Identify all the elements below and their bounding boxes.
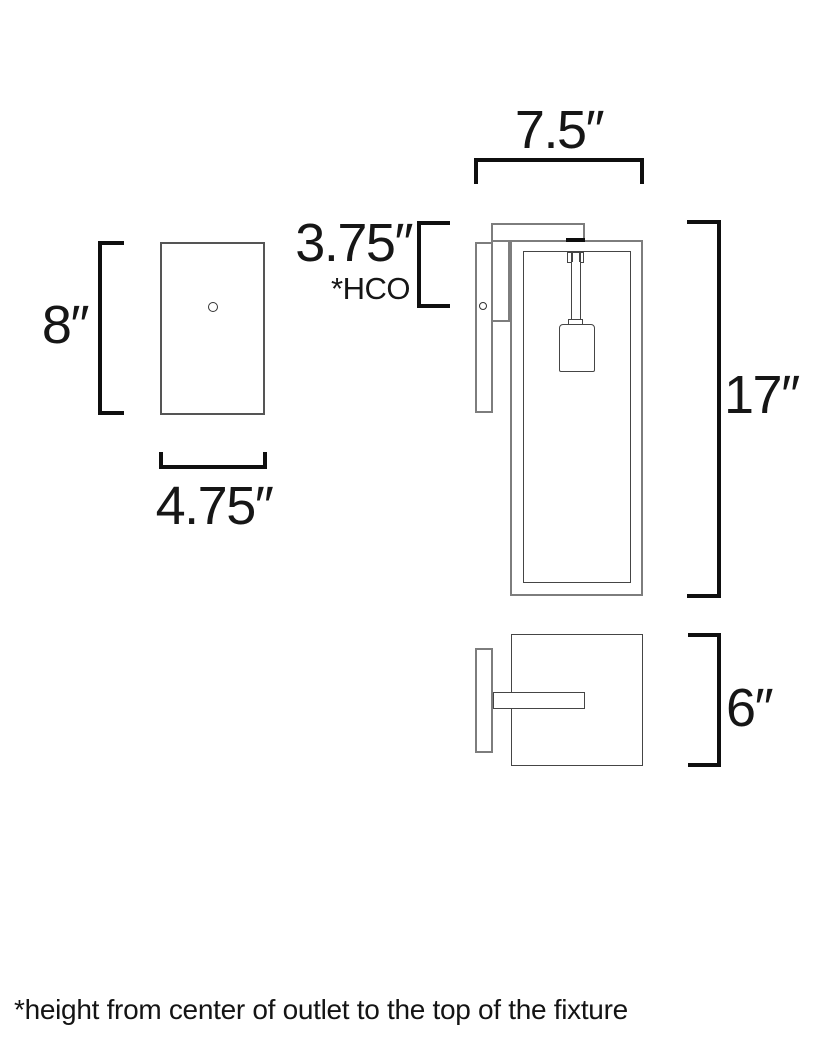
dim-bracket-4-75 — [159, 452, 267, 469]
dim-label-7-5: 7.5″ — [472, 103, 646, 157]
socket-cup — [559, 324, 595, 372]
mount-arm-vertical — [491, 240, 510, 322]
top-view-arm — [493, 692, 585, 709]
dimension-diagram: 8″ 4.75″ 7.5″ 3.75″ *HCO 17″ 6″ *height … — [0, 0, 834, 1042]
dim-label-6: 6″ — [726, 681, 772, 735]
footnote: *height from center of outlet to the top… — [14, 994, 628, 1026]
dim-bracket-7-5 — [474, 158, 644, 184]
dim-label-8: 8″ — [0, 298, 88, 352]
socket-stem — [571, 262, 581, 322]
dim-bracket-hco — [417, 221, 450, 308]
dim-bracket-8 — [98, 241, 124, 415]
dim-label-hco-note: *HCO — [250, 273, 410, 304]
dim-label-hco: 3.75″ — [250, 216, 412, 270]
outlet-hole — [479, 302, 487, 310]
arm-frame-joint — [566, 238, 585, 242]
dim-bracket-6 — [688, 633, 721, 767]
dim-label-4-75: 4.75″ — [134, 479, 294, 533]
dim-bracket-17 — [687, 220, 721, 598]
top-view-wall-plate — [475, 648, 493, 753]
backplate-mounting-hole — [208, 302, 218, 312]
dim-label-17: 17″ — [724, 368, 799, 422]
